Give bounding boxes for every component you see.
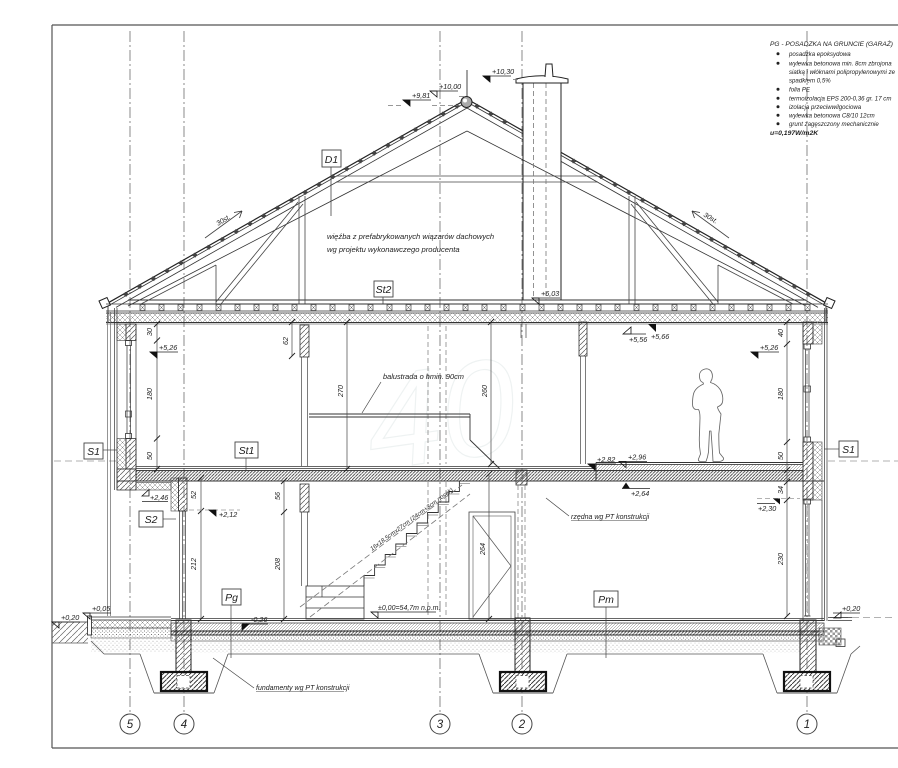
svg-text:+6,03: +6,03: [541, 289, 559, 298]
svg-text:212: 212: [189, 558, 198, 571]
svg-text:S1: S1: [87, 446, 100, 458]
svg-text:34: 34: [776, 486, 785, 494]
svg-text:62: 62: [281, 337, 290, 345]
svg-text:30st.: 30st.: [702, 212, 719, 226]
svg-text:3: 3: [437, 719, 444, 731]
svg-text:balustrada o hmin. 90cm: balustrada o hmin. 90cm: [383, 372, 464, 381]
svg-text:+2,64: +2,64: [631, 489, 649, 498]
svg-text:u=0,197W/m2K: u=0,197W/m2K: [770, 130, 819, 137]
svg-text:30: 30: [145, 328, 154, 336]
svg-text:spadkiem 0,5%: spadkiem 0,5%: [789, 78, 831, 85]
svg-text:wylewka betonowa min. 8cm zbro: wylewka betonowa min. 8cm zbrojona: [789, 61, 892, 68]
svg-text:+2,46: +2,46: [150, 493, 168, 502]
svg-text:+2,12: +2,12: [219, 510, 237, 519]
svg-text:+2,82: +2,82: [597, 455, 615, 464]
svg-text:D1: D1: [325, 154, 338, 166]
svg-text:52: 52: [189, 491, 198, 499]
svg-text:+10,00: +10,00: [439, 82, 461, 91]
svg-text:264: 264: [478, 543, 487, 556]
svg-text:208: 208: [273, 558, 282, 571]
svg-text:56: 56: [273, 492, 282, 500]
svg-text:230: 230: [776, 553, 785, 566]
svg-text:fundamenty wg PT konstrukcji: fundamenty wg PT konstrukcji: [256, 685, 350, 692]
svg-text:siatką i włóknami polipropylen: siatką i włóknami polipropylenowymi ze: [789, 69, 896, 76]
svg-text:+0,20: +0,20: [61, 613, 79, 622]
svg-text:grunt zagęszczony mechanicznie: grunt zagęszczony mechanicznie: [789, 121, 879, 128]
svg-text:posadzka epoksydowa: posadzka epoksydowa: [788, 51, 851, 58]
svg-text:Pm: Pm: [598, 594, 614, 606]
svg-text:1: 1: [804, 719, 810, 731]
svg-text:180: 180: [145, 388, 154, 400]
svg-text:+5,66: +5,66: [651, 332, 669, 341]
svg-text:260: 260: [480, 385, 489, 398]
svg-text:180: 180: [776, 388, 785, 400]
svg-text:PG - POSADZKA NA GRUNCIE (GARA: PG - POSADZKA NA GRUNCIE (GARAŻ): [770, 40, 893, 48]
svg-text:termoizolacja EPS 200-0,36 gr.: termoizolacja EPS 200-0,36 gr. 17 cm: [789, 96, 891, 103]
svg-text:+9,81: +9,81: [412, 91, 430, 100]
svg-text:2: 2: [518, 719, 526, 731]
svg-text:+0,05: +0,05: [92, 604, 111, 613]
svg-text:+0,20: +0,20: [842, 604, 860, 613]
svg-text:więźba z prefabrykowanych wiąz: więźba z prefabrykowanych wiązarów dacho…: [327, 232, 494, 241]
svg-text:+5,26: +5,26: [159, 343, 177, 352]
svg-text:4: 4: [181, 719, 187, 731]
svg-text:St2: St2: [376, 284, 392, 296]
svg-text:50: 50: [776, 452, 785, 460]
svg-text:wg projektu wykonawczego produ: wg projektu wykonawczego producenta: [327, 245, 460, 254]
svg-text:wylewka betonowa C8/10 12cm: wylewka betonowa C8/10 12cm: [789, 113, 875, 120]
svg-text:+10,30: +10,30: [492, 67, 514, 76]
svg-text:±0,00=54,7m n.p.m.: ±0,00=54,7m n.p.m.: [378, 605, 440, 612]
svg-text:5: 5: [127, 719, 134, 731]
svg-text:S1: S1: [842, 444, 855, 456]
svg-text:rzędna wg PT konstrukcji: rzędna wg PT konstrukcji: [571, 514, 650, 521]
svg-text:Pg: Pg: [225, 592, 238, 604]
svg-text:50: 50: [145, 452, 154, 460]
svg-text:+2,30: +2,30: [758, 504, 776, 513]
svg-text:+5,56: +5,56: [629, 335, 647, 344]
svg-text:folia PE: folia PE: [789, 87, 811, 94]
svg-text:+2,96: +2,96: [628, 453, 646, 462]
svg-text:270: 270: [336, 385, 345, 398]
svg-text:S2: S2: [145, 514, 158, 526]
svg-text:izolacja przeciwwilgociowa: izolacja przeciwwilgociowa: [789, 104, 862, 111]
svg-text:30st.: 30st.: [215, 214, 232, 228]
svg-text:40: 40: [776, 329, 785, 337]
svg-text:St1: St1: [239, 445, 255, 457]
svg-text:+5,26: +5,26: [760, 343, 778, 352]
svg-text:-0,26: -0,26: [251, 615, 267, 624]
